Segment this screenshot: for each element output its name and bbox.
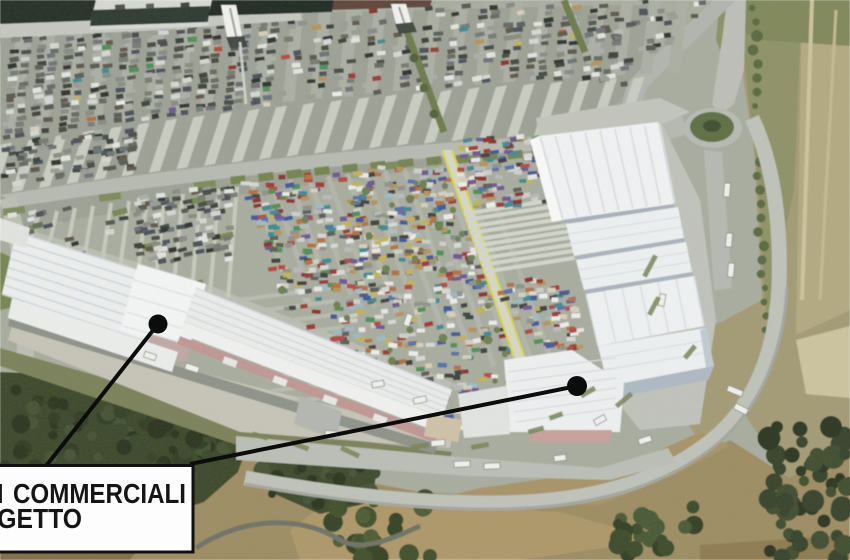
svg-text:OGETTO: OGETTO <box>0 503 82 534</box>
